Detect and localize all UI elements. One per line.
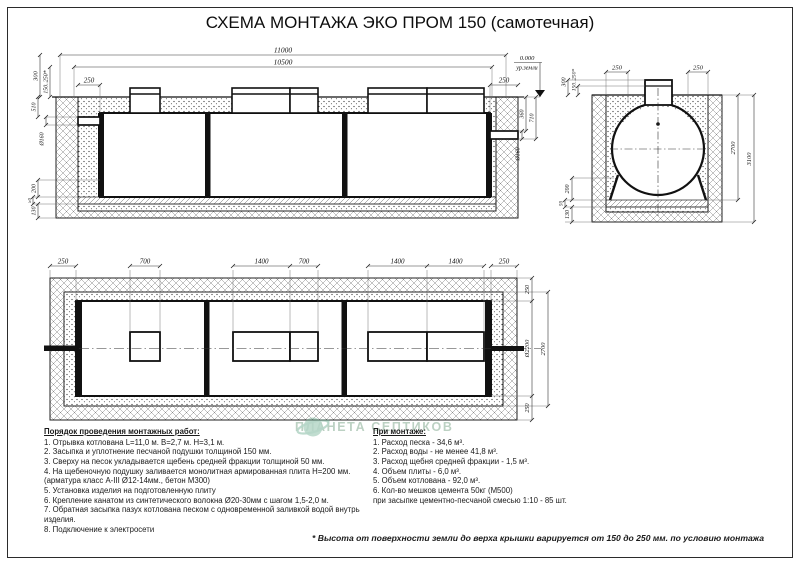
montage-item: 5. Объем котлована - 92,0 м³. bbox=[373, 476, 625, 486]
procedure-list: Порядок проведения монтажных работ: 1. О… bbox=[44, 427, 378, 534]
drawing-sheet: СХЕМА МОНТАЖА ЭКО ПРОМ 150 (самотечная) bbox=[0, 0, 800, 565]
montage-item: при засыпке цементно-песчаной смесью 1:1… bbox=[373, 496, 625, 506]
dim-bed-slab: 130 bbox=[32, 207, 38, 216]
dim-right-gap: 250 bbox=[499, 77, 510, 85]
side-tank bbox=[98, 113, 492, 197]
dim-total-length: 11000 bbox=[274, 46, 292, 55]
procedure-item: 2. Засыпка и уплотнение песчаной подушки… bbox=[44, 447, 378, 457]
dim-chain-0: 250 bbox=[58, 258, 69, 266]
dim-bed-gravel: 50 bbox=[559, 201, 565, 207]
dim-cover-height: 300 bbox=[33, 70, 40, 82]
footnote: * Высота от поверхности земли до верха к… bbox=[312, 533, 787, 543]
dim-tank-length: 10500 bbox=[274, 58, 293, 67]
procedure-item: 7. Обратная засыпка пазух котлована песк… bbox=[44, 505, 378, 524]
dim-left-gap: 250 bbox=[612, 65, 623, 72]
procedure-item: 4. На щебеночную подушку заливается моно… bbox=[44, 467, 378, 477]
dim-right-bottom: 250 bbox=[524, 402, 531, 412]
dim-right-top: 250 bbox=[524, 284, 531, 294]
procedure-heading: Порядок проведения монтажных работ: bbox=[44, 427, 378, 437]
dim-pit-width: 2700 bbox=[540, 342, 547, 356]
dim-chain-1: 700 bbox=[140, 258, 151, 266]
procedure-item: 6. Крепление канатом из синтетического в… bbox=[44, 496, 378, 506]
level-mark: 0.000 bbox=[520, 55, 535, 62]
level-label: ур.земли bbox=[515, 66, 537, 72]
dim-chain-4: 1400 bbox=[391, 258, 406, 266]
dim-inlet-pipe: Ø160 bbox=[40, 132, 46, 146]
montage-heading: При монтаже: bbox=[373, 427, 625, 437]
dim-outlet-offset: 360 bbox=[520, 110, 526, 120]
dim-bed-sand: 200 bbox=[565, 185, 571, 194]
dim-chain-2: 1400 bbox=[255, 258, 270, 266]
page-title: СХЕМА МОНТАЖА ЭКО ПРОМ 150 (самотечная) bbox=[0, 13, 800, 33]
dim-chain-3: 700 bbox=[299, 258, 310, 266]
montage-item: 2. Расход воды - не менее 41,8 м³. bbox=[373, 447, 625, 457]
plan-view-drawing: 250 700 1400 700 1400 1400 250 250 Ø2200… bbox=[36, 248, 606, 438]
dim-inlet-depth: 510 bbox=[32, 103, 38, 112]
dim-bed-sand: 200 bbox=[32, 184, 38, 193]
dim-right-gap: 250 bbox=[693, 65, 704, 72]
montage-list: При монтаже: 1. Расход песка - 34,6 м³. … bbox=[373, 427, 625, 505]
dim-left-gap: 250 bbox=[84, 77, 95, 85]
montage-item: 6. Кол-во мешков цемента 50кг (М500) bbox=[373, 486, 625, 496]
procedure-item: (арматура класс А-III Ø12-14мм., бетон М… bbox=[44, 476, 378, 486]
montage-item: 4. Объем плиты - 6,0 м³. bbox=[373, 467, 625, 477]
dim-ground-variation: 150..250* bbox=[44, 70, 50, 93]
end-view-drawing: 300 150..250* 250 250 2700 3100 200 50 1… bbox=[552, 40, 797, 248]
dim-cover-height: 300 bbox=[561, 76, 568, 87]
dim-tank-depth: 2700 bbox=[730, 141, 737, 155]
dim-outlet-pipe: Ø160 bbox=[516, 147, 522, 161]
procedure-item: 3. Сверху на песок укладывается щебень с… bbox=[44, 457, 378, 467]
procedure-item: 1. Отрывка котлована L=11,0 м. B=2,7 м. … bbox=[44, 438, 378, 448]
procedure-item: 5. Установка изделия на подготовленную п… bbox=[44, 486, 378, 496]
side-view-drawing: 11000 10500 250 250 0.000 ур.земли 300 1… bbox=[28, 40, 548, 240]
montage-item: 3. Расход щебня средней фракции - 1,5 м³… bbox=[373, 457, 625, 467]
dim-bed-gravel: 50 bbox=[28, 198, 33, 204]
dim-outlet-depth: 710 bbox=[530, 114, 536, 123]
end-bedding bbox=[606, 200, 708, 212]
dim-ground-variation: 150..250* bbox=[572, 69, 578, 92]
montage-item: 1. Расход песка - 34,6 м³. bbox=[373, 438, 625, 448]
dim-chain-6: 250 bbox=[499, 258, 510, 266]
dim-bed-slab: 130 bbox=[565, 210, 571, 219]
dim-tank-diameter: Ø2200 bbox=[524, 339, 531, 358]
dim-chain-5: 1400 bbox=[449, 258, 464, 266]
dim-pit-depth: 3100 bbox=[746, 152, 753, 167]
